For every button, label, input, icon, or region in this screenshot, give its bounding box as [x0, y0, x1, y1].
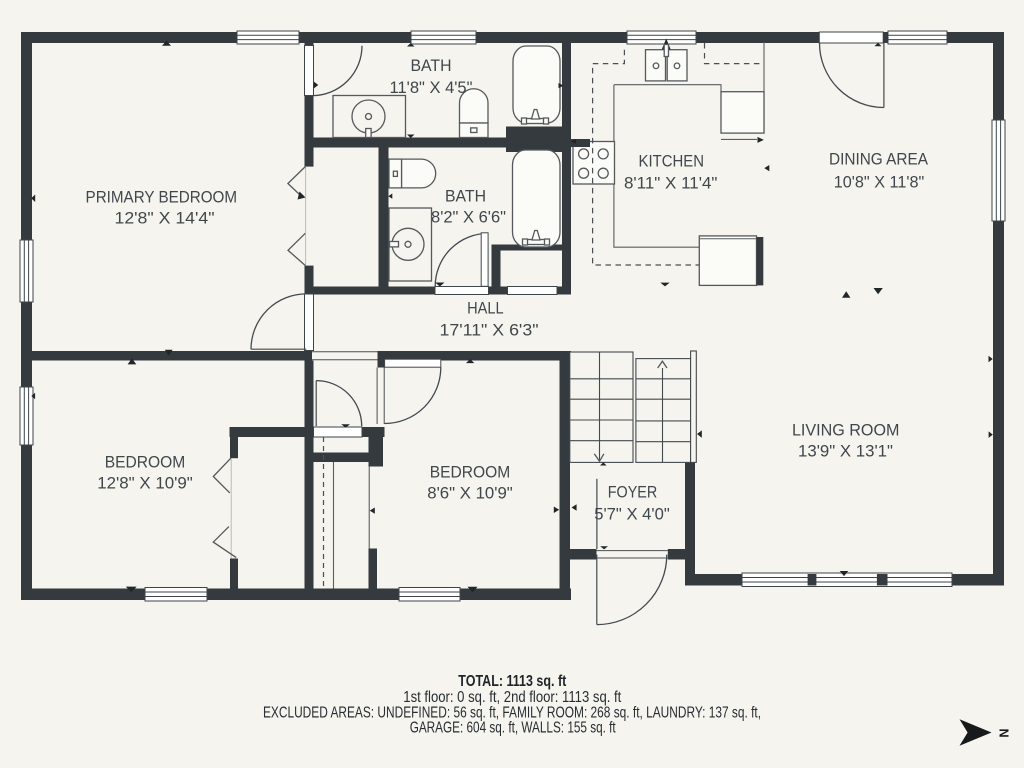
svg-text:LIVING ROOM: LIVING ROOM [792, 420, 900, 439]
svg-text:12'8" X 14'4": 12'8" X 14'4" [115, 208, 215, 227]
svg-text:BEDROOM: BEDROOM [430, 462, 511, 481]
svg-text:12'8" X 10'9": 12'8" X 10'9" [97, 474, 193, 493]
svg-text:10'8" X 11'8": 10'8" X 11'8" [834, 173, 925, 192]
svg-text:PRIMARY BEDROOM: PRIMARY BEDROOM [86, 187, 238, 206]
svg-text:13'9" X 13'1": 13'9" X 13'1" [798, 441, 893, 460]
svg-text:HALL: HALL [467, 299, 504, 318]
svg-text:8'6" X 10'9": 8'6" X 10'9" [427, 484, 513, 503]
svg-text:1st floor: 0 sq. ft, 2nd floor: 1st floor: 0 sq. ft, 2nd floor: 1113 sq.… [403, 689, 622, 706]
svg-text:DINING AREA: DINING AREA [829, 150, 929, 169]
svg-text:BATH: BATH [411, 56, 452, 75]
svg-text:17'11" X 6'3": 17'11" X 6'3" [440, 321, 539, 340]
svg-text:BATH: BATH [445, 187, 486, 206]
svg-text:8'2" X 6'6": 8'2" X 6'6" [431, 208, 506, 227]
svg-text:FOYER: FOYER [608, 482, 658, 501]
svg-text:5'7" X 4'0": 5'7" X 4'0" [594, 504, 670, 523]
svg-text:11'8" X 4'5": 11'8" X 4'5" [390, 78, 473, 97]
svg-text:BEDROOM: BEDROOM [105, 453, 186, 472]
svg-text:KITCHEN: KITCHEN [639, 151, 705, 170]
svg-text:TOTAL: 1113 sq. ft: TOTAL: 1113 sq. ft [458, 673, 566, 690]
svg-text:GARAGE: 604 sq. ft, WALLS: 155: GARAGE: 604 sq. ft, WALLS: 155 sq. ft [410, 720, 617, 737]
svg-text:8'11" X 11'4": 8'11" X 11'4" [624, 173, 718, 192]
svg-text:N: N [997, 728, 1011, 737]
